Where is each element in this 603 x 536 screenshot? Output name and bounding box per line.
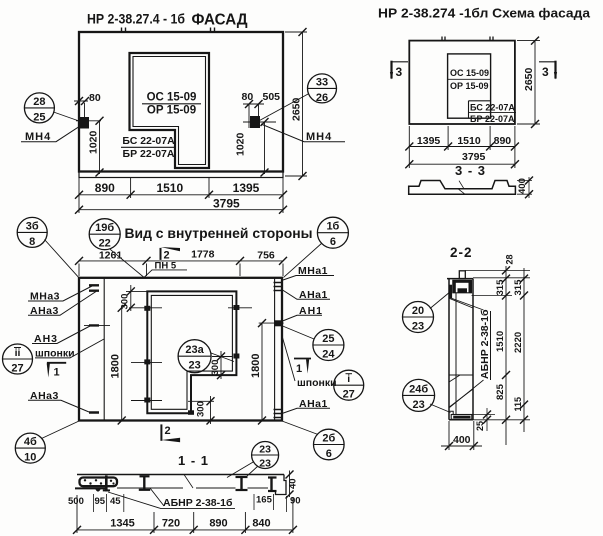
svg-text:505: 505 [263,91,281,103]
svg-text:БР 22-07А: БР 22-07А [470,114,515,124]
svg-text:19б: 19б [95,222,114,234]
svg-text:80: 80 [242,91,254,103]
svg-text:3: 3 [396,65,403,79]
svg-text:45: 45 [110,496,121,507]
svg-text:400: 400 [517,178,528,194]
svg-text:24б: 24б [409,383,428,395]
svg-text:АБНР 2-38-1б: АБНР 2-38-1б [163,497,233,509]
svg-text:шпонки: шпонки [297,377,337,389]
svg-text:3б: 3б [26,220,39,232]
svg-text:1261: 1261 [99,249,123,261]
svg-text:28: 28 [33,96,45,108]
svg-text:БС 22-07А: БС 22-07А [470,103,515,113]
svg-text:115: 115 [513,397,523,412]
svg-text:22: 22 [99,238,111,250]
svg-text:400: 400 [453,434,471,446]
svg-text:23а: 23а [185,344,204,356]
svg-text:23: 23 [259,444,271,456]
svg-text:3795: 3795 [213,197,240,211]
svg-text:6: 6 [326,448,332,460]
svg-text:1510: 1510 [495,331,506,352]
svg-text:2220: 2220 [513,332,524,353]
svg-text:300: 300 [120,294,131,310]
svg-text:1020: 1020 [88,130,100,154]
svg-text:300: 300 [210,360,221,376]
svg-text:10: 10 [24,452,36,464]
svg-text:1б: 1б [326,221,339,233]
svg-text:2б: 2б [322,433,335,445]
svg-text:95: 95 [95,496,106,507]
svg-text:1800: 1800 [250,354,262,378]
svg-text:ОС 15-09: ОС 15-09 [147,92,197,104]
svg-text:1778: 1778 [191,249,215,261]
svg-text:90: 90 [290,496,301,507]
svg-text:23: 23 [412,321,424,333]
svg-text:300: 300 [196,401,207,417]
svg-text:1395: 1395 [417,135,441,147]
svg-text:756: 756 [257,250,275,262]
svg-text:8: 8 [29,236,35,248]
svg-text:27: 27 [11,363,23,375]
svg-text:165: 165 [256,495,273,506]
svg-text:40: 40 [288,478,299,489]
svg-text:2650: 2650 [291,97,303,121]
svg-text:1: 1 [54,367,60,379]
svg-text:500: 500 [68,496,84,507]
svg-text:ОР 15-09: ОР 15-09 [147,105,196,117]
svg-text:ОС 15-09: ОС 15-09 [450,68,489,78]
svg-text:ii: ii [15,347,21,359]
svg-text:27: 27 [343,389,355,401]
svg-text:БС 22-07А: БС 22-07А [122,135,175,147]
svg-text:24: 24 [322,349,335,361]
svg-text:1395: 1395 [233,181,260,195]
svg-text:825: 825 [495,383,506,400]
svg-text:20: 20 [412,305,424,317]
svg-text:2: 2 [164,250,170,262]
svg-text:1020: 1020 [235,132,247,156]
svg-text:25: 25 [475,421,485,431]
svg-text:1: 1 [296,363,302,375]
svg-text:2-2: 2-2 [450,245,473,260]
svg-text:4б: 4б [24,436,37,448]
svg-text:33: 33 [316,76,328,88]
svg-text:840: 840 [252,518,270,530]
svg-text:2650: 2650 [523,67,535,91]
svg-text:28: 28 [505,254,515,264]
svg-text:315: 315 [495,279,506,296]
svg-text:2: 2 [165,425,171,437]
svg-text:23: 23 [412,399,424,411]
svg-text:3795: 3795 [462,151,486,163]
svg-text:АБНР 2-38-1б: АБНР 2-38-1б [479,309,491,379]
svg-text:1345: 1345 [110,518,134,530]
svg-text:315: 315 [513,279,524,296]
svg-text:1510: 1510 [457,135,481,147]
svg-text:890: 890 [95,181,115,195]
svg-text:3: 3 [542,65,549,79]
svg-text:720: 720 [162,518,180,530]
svg-text:Вид с внутренней стороны: Вид с внутренней стороны [125,226,313,241]
svg-text:26: 26 [316,92,328,104]
svg-text:23: 23 [259,458,271,470]
svg-text:6: 6 [330,236,336,248]
svg-text:НР 2-38.27.4 - 1б: НР 2-38.27.4 - 1б [87,11,185,27]
svg-text:ОР 15-09: ОР 15-09 [450,81,489,91]
svg-text:3 - 3: 3 - 3 [455,163,486,178]
svg-text:1800: 1800 [110,354,122,378]
svg-text:23: 23 [188,360,200,372]
svg-text:25: 25 [33,111,45,123]
svg-text:1510: 1510 [156,181,183,195]
svg-text:ФАСАД: ФАСАД [192,12,249,29]
svg-text:890: 890 [209,518,227,530]
svg-text:80: 80 [89,92,101,104]
svg-text:1 - 1: 1 - 1 [178,453,209,468]
svg-text:НР 2-38.274 -1бл Схема фасада: НР 2-38.274 -1бл Схема фасада [378,6,591,21]
svg-text:i: i [347,373,350,385]
svg-text:890: 890 [494,135,512,147]
svg-text:25: 25 [322,333,334,345]
svg-text:БР 22-07А: БР 22-07А [123,148,175,160]
